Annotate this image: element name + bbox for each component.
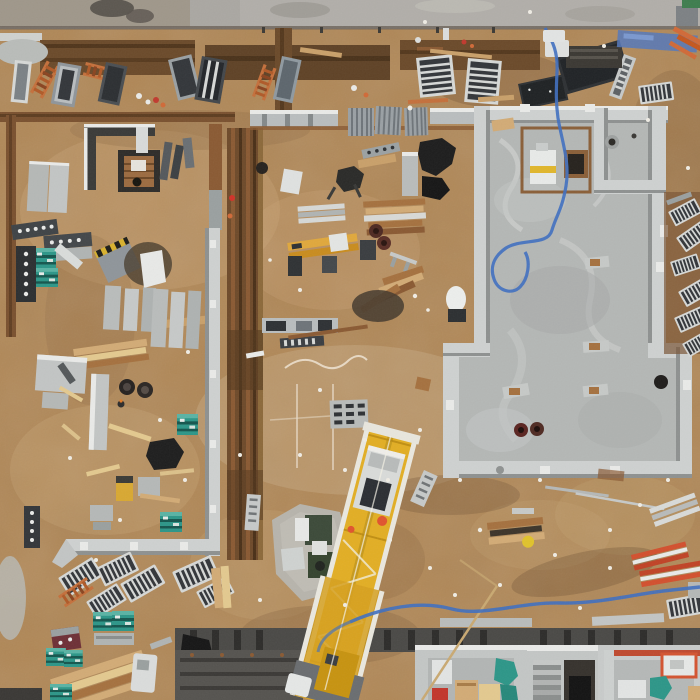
photo-grain: [0, 0, 700, 700]
construction-site-aerial-photo: [0, 0, 700, 700]
